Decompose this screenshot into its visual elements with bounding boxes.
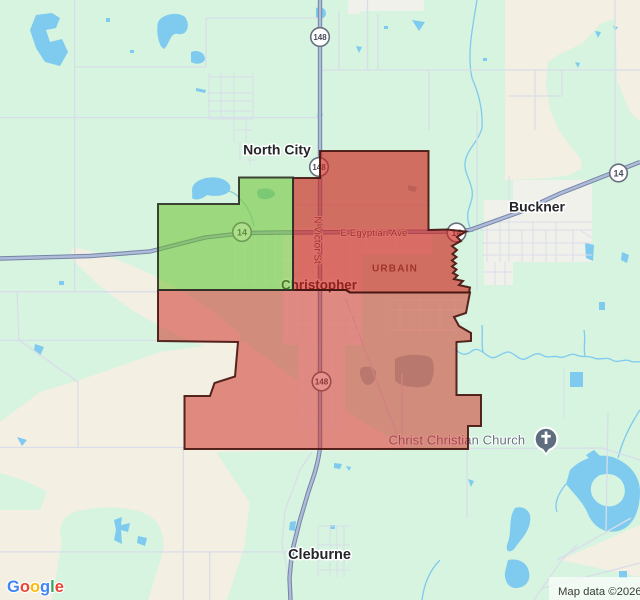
svg-text:14: 14	[613, 169, 623, 179]
svg-text:Buckner: Buckner	[509, 199, 566, 215]
svg-text:Map data ©2026: Map data ©2026	[558, 586, 640, 598]
svg-text:Google: Google	[7, 578, 64, 596]
svg-text:North City: North City	[243, 142, 311, 158]
svg-text:Cleburne: Cleburne	[288, 547, 351, 563]
svg-text:148: 148	[313, 33, 327, 42]
